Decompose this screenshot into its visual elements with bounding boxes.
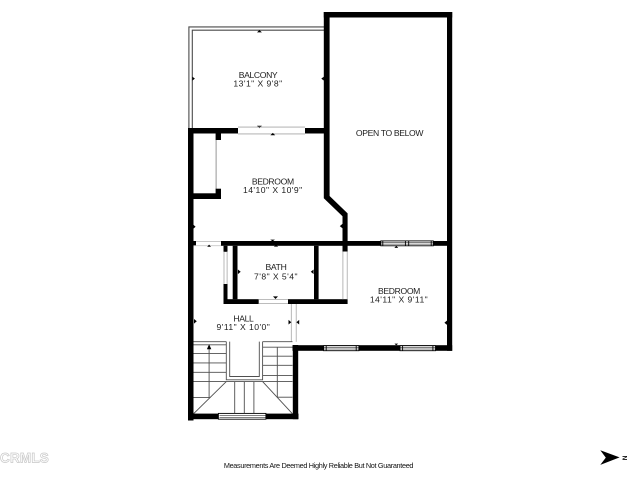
svg-text:CRMLS: CRMLS — [0, 451, 49, 466]
svg-text:Measurements Are Deemed Highly: Measurements Are Deemed Highly Reliable … — [224, 461, 414, 470]
svg-text:9'11" X 10'0": 9'11" X 10'0" — [217, 322, 271, 332]
svg-text:N: N — [621, 456, 628, 461]
svg-text:OPEN TO BELOW: OPEN TO BELOW — [356, 128, 424, 138]
svg-text:14'11" X 9'11": 14'11" X 9'11" — [370, 295, 428, 305]
svg-text:14'10" X 10'9": 14'10" X 10'9" — [243, 185, 303, 195]
svg-text:13'1" X 9'8": 13'1" X 9'8" — [233, 79, 282, 89]
svg-text:7'8" X 5'4": 7'8" X 5'4" — [254, 271, 298, 281]
